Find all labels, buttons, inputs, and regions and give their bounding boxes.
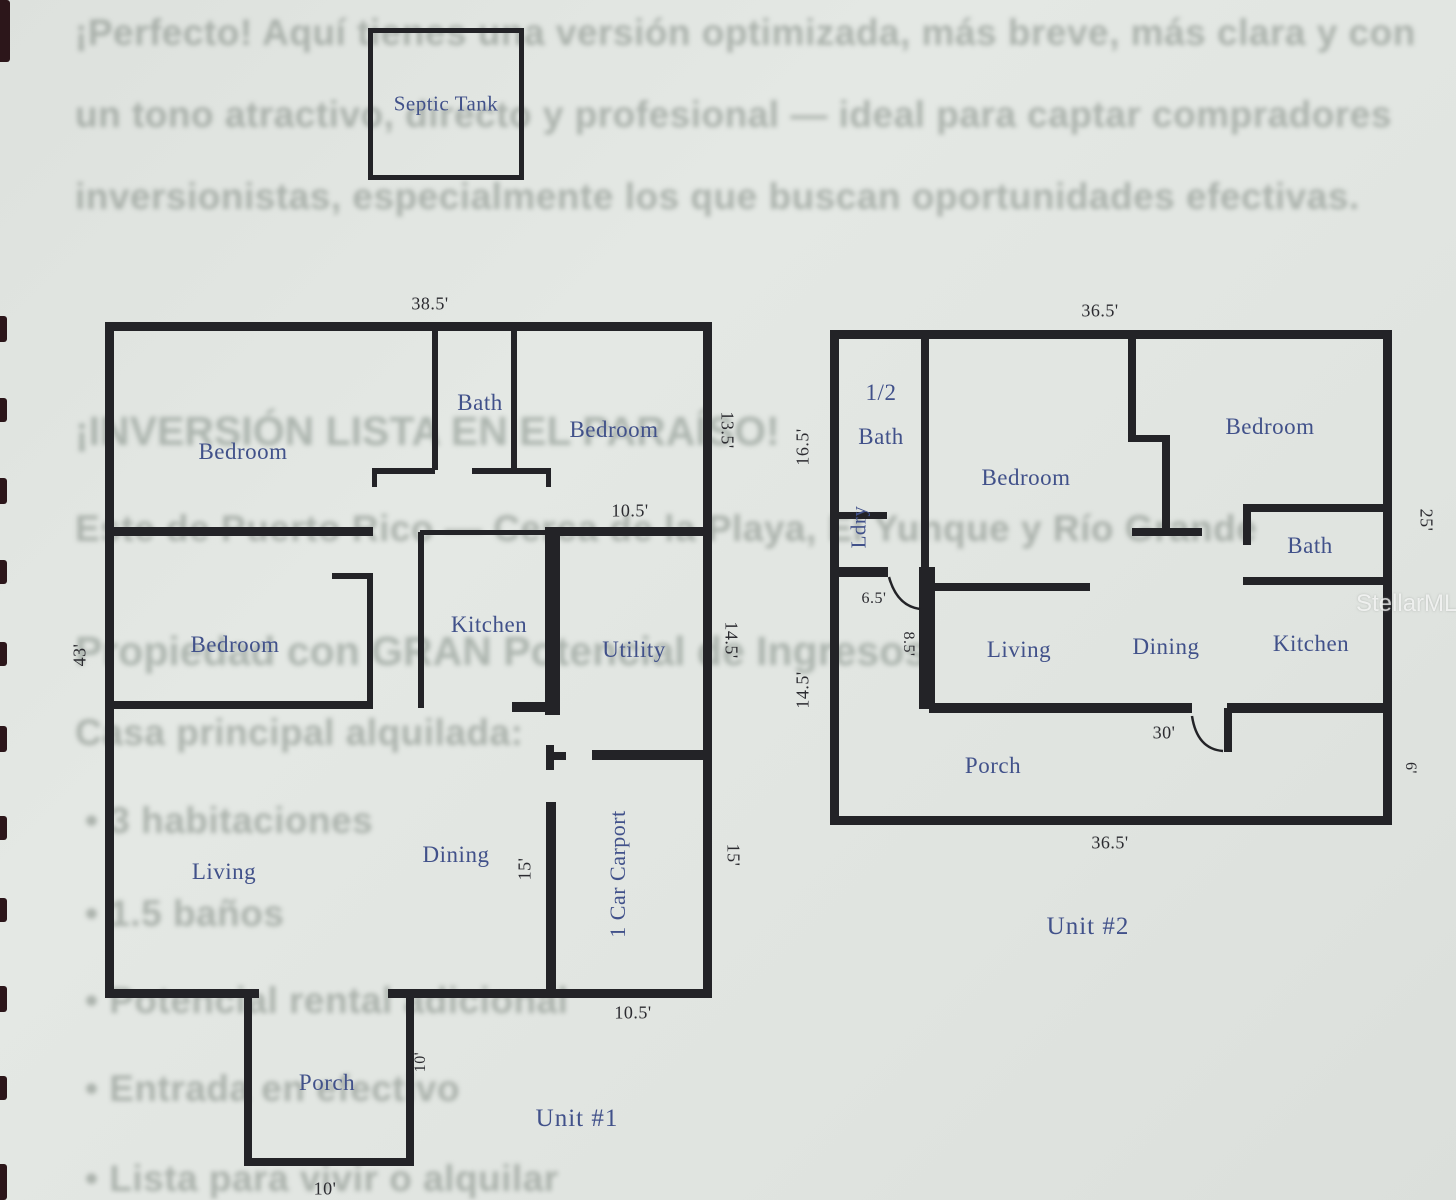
dim-label: 15' [515,858,536,881]
dim-label: 36.5' [1091,833,1128,854]
dim-label: 43' [70,644,91,667]
room-label-bedroom: Bedroom [198,439,287,465]
room-label-bedroom: Bedroom [1225,414,1314,440]
room-label-utility: Utility [602,637,666,663]
door-arcs [0,0,1456,1200]
dim-label: 38.5' [411,294,448,315]
dim-label: 10' [314,1179,337,1200]
door-arc [1192,716,1223,751]
dim-label: 30' [1153,723,1176,744]
dim-label: 13.5' [717,411,738,448]
dim-label: 8.5' [899,632,917,657]
unit2-name: Unit #2 [1047,913,1130,941]
dim-label: 6.5' [862,590,887,608]
floor-plan: Septic Tank [0,0,1456,1200]
dim-label: 14.5' [721,621,742,658]
room-label-dining: Dining [1133,634,1200,660]
room-label-half-bath: 1/2 [866,380,897,406]
room-label-laundry: Ldry [847,506,872,549]
door-arc [889,577,920,609]
room-label-bath: Bath [1287,533,1332,559]
dim-label: 16.5' [793,428,814,465]
room-label-bedroom: Bedroom [190,632,279,658]
room-label-kitchen: Kitchen [1273,631,1349,657]
unit1-name: Unit #1 [536,1105,619,1133]
dim-label: 25' [1416,509,1437,532]
room-label-bath: Bath [457,390,502,416]
dim-label: 36.5' [1081,301,1118,322]
dim-label: 15' [723,844,744,867]
room-label-dining: Dining [423,842,490,868]
dim-label: 10.5' [614,1003,651,1024]
room-label-carport: 1 Car Carport [605,810,631,937]
floor-plan-page: ¡Perfecto! Aquí tienes una versión optim… [0,0,1456,1200]
room-label-bedroom: Bedroom [569,417,658,443]
room-label-half-bath: Bath [858,424,903,450]
dim-label: 6' [1401,762,1419,774]
room-label-porch: Porch [299,1070,355,1096]
dim-label: 10' [412,1052,430,1072]
room-label-living: Living [192,859,256,885]
dim-label: 14.5' [793,671,814,708]
room-label-living: Living [987,637,1051,663]
stellar-mls-watermark: StellarMLS [1356,590,1456,618]
dim-label: 10.5' [611,501,648,522]
room-label-bedroom: Bedroom [981,465,1070,491]
room-label-porch: Porch [965,753,1021,779]
room-label-kitchen: Kitchen [451,612,527,638]
